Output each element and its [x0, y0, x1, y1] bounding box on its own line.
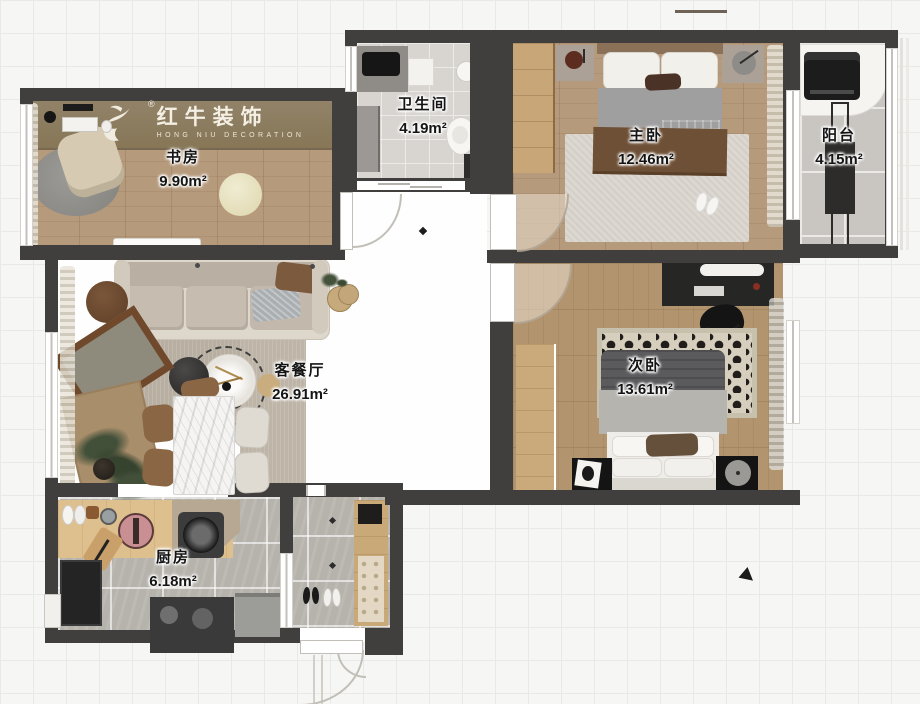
bathroom-mat	[408, 58, 434, 86]
kitchen-wall-appliance	[44, 594, 61, 628]
room-name: 厨房	[149, 550, 197, 566]
bathroom-sink-black	[362, 52, 400, 76]
living-curtain	[60, 266, 75, 494]
second-desk-keyboard	[694, 286, 724, 296]
wall-kitchen-top-left	[45, 483, 118, 497]
master-wardrobe	[513, 43, 555, 173]
shoe-cabinet-item-textured	[358, 556, 384, 622]
room-area: 9.90m²	[159, 174, 207, 190]
room-area: 12.46m²	[618, 152, 674, 168]
window-second-right	[786, 320, 800, 424]
master-small-pillow	[645, 73, 682, 91]
cooktop-burner-1	[160, 606, 178, 624]
brand-name: 红牛装饰	[157, 107, 305, 129]
hallway-plant-leaves	[336, 279, 348, 287]
room-label-kitchen: 厨房 6.18m²	[149, 550, 197, 590]
exterior-line-2	[906, 38, 909, 250]
sliding-door-groove-1	[378, 183, 410, 185]
kitchen-bottle-2	[74, 505, 86, 525]
wall-living-bottom-right	[385, 490, 497, 505]
hallway-plant-pot	[338, 284, 359, 305]
study-pouf	[219, 173, 262, 216]
room-label-balcony: 阳台 4.15m²	[815, 128, 863, 168]
room-label-second: 次卧 13.61m²	[617, 358, 673, 398]
kitchen-wok	[183, 517, 219, 553]
second-wardrobe	[516, 344, 556, 492]
plant-pot	[93, 458, 115, 480]
brand-subtitle: HONG NIU DECORATION	[157, 132, 305, 139]
toilet-seat	[452, 126, 468, 144]
hall-door-leaf	[340, 192, 353, 250]
cat-figurine	[582, 466, 594, 481]
master-curtain	[767, 45, 784, 227]
room-name: 书房	[159, 150, 207, 166]
exterior-line-1	[900, 38, 903, 250]
kitchen-fridge	[60, 560, 102, 626]
desk-keyboard	[62, 117, 98, 132]
desk-monitor	[63, 104, 93, 111]
kitchen-bottle-1	[62, 505, 74, 525]
window-study-left	[20, 104, 33, 246]
wall-balcony-bottom	[800, 244, 898, 258]
north-arrow	[739, 567, 758, 586]
master-lamp-cord	[583, 49, 585, 63]
kitchen-small-sink	[100, 508, 117, 525]
wall-entry-bottom-right	[365, 628, 403, 655]
sofa-cushion-2	[186, 286, 248, 330]
ceiling-dot-2	[310, 264, 315, 269]
desk-cup	[44, 111, 56, 123]
second-headboard	[601, 478, 725, 490]
cooktop-burner-2	[192, 608, 213, 629]
wall-bedroom-divider	[487, 250, 800, 263]
room-area: 4.19m²	[397, 121, 448, 137]
second-door-leaf	[490, 263, 515, 322]
dimension-mark-top	[675, 10, 727, 13]
window-master-balcony	[786, 90, 800, 220]
floor-plan-canvas: ® 红牛装饰 HONG NIU DECORATION	[0, 0, 920, 704]
room-name: 次卧	[617, 358, 673, 374]
second-pillow-4	[664, 458, 714, 477]
room-area: 4.15m²	[815, 152, 863, 168]
clock-center-dot	[736, 471, 740, 475]
window-bathroom-left	[345, 46, 357, 92]
room-label-living: 客餐厅 26.91m²	[272, 363, 328, 403]
room-area: 6.18m²	[149, 574, 197, 590]
window-balcony-right	[886, 48, 898, 246]
dining-chair-white-1	[234, 406, 271, 449]
room-label-bathroom: 卫生间 4.19m²	[397, 97, 448, 137]
second-pillow-3	[612, 458, 662, 477]
second-wardrobe-edge	[554, 344, 556, 492]
wall-study-top	[20, 88, 345, 101]
sliding-door-groove-2	[410, 186, 442, 188]
wall-second-bottom	[487, 490, 800, 505]
dining-chair-white-2	[234, 451, 270, 494]
wall-hall-second	[490, 322, 513, 497]
kitchen-stove-grate	[133, 518, 139, 544]
shoe-cabinet-item-dark	[358, 504, 382, 524]
wall-entry-right	[390, 497, 403, 628]
room-name: 卫生间	[397, 97, 448, 113]
opening-kitchen-entry	[280, 553, 293, 628]
kitchen-cooktop-unit	[150, 597, 234, 653]
wall-bathroom-right-shaft	[470, 43, 513, 194]
dining-table-marble	[173, 396, 235, 495]
room-label-master: 主卧 12.46m²	[618, 128, 674, 168]
wall-top	[345, 30, 898, 43]
room-name: 主卧	[618, 128, 674, 144]
second-desk-mug	[753, 283, 760, 290]
master-door-leaf	[490, 194, 517, 250]
wall-study-bottom	[20, 245, 345, 260]
entry-door-leaf	[300, 640, 363, 654]
ceiling-dot-1	[195, 263, 200, 268]
second-brown-pillow	[646, 433, 699, 457]
brand-logo: ® 红牛装饰 HONG NIU DECORATION	[96, 103, 304, 143]
room-name: 阳台	[815, 128, 863, 144]
window-living-left	[45, 332, 58, 478]
kitchen-jar	[86, 506, 99, 519]
second-curtain	[769, 298, 784, 470]
coffee-table-center-dot	[222, 382, 231, 391]
master-lamp	[565, 51, 583, 69]
room-area: 13.61m²	[617, 382, 673, 398]
room-area: 26.91m²	[272, 387, 328, 403]
kitchen-dishwasher	[235, 593, 280, 637]
registered-mark: ®	[148, 99, 155, 109]
room-name: 客餐厅	[272, 363, 328, 379]
opening-entry-living	[306, 485, 326, 496]
balcony-washer-panel	[810, 90, 854, 94]
room-label-study: 书房 9.90m²	[159, 150, 207, 190]
second-desk-pad	[700, 264, 764, 276]
desk-mouse	[101, 120, 112, 133]
